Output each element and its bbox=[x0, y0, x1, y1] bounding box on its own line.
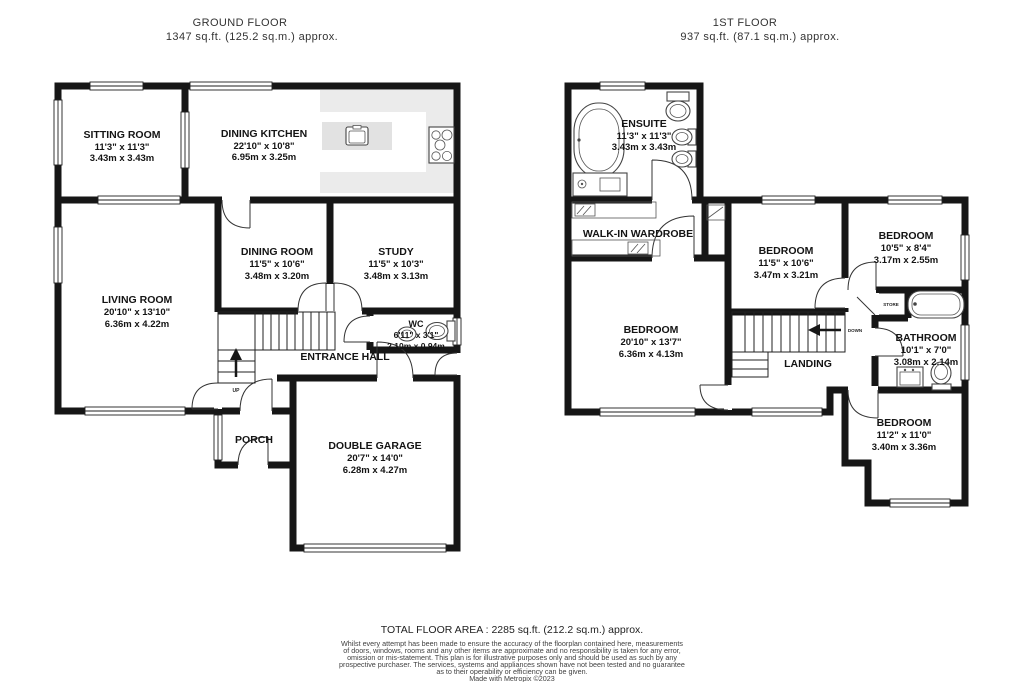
glazed-opening bbox=[98, 196, 180, 204]
window bbox=[190, 82, 272, 90]
room-name: BATHROOM bbox=[895, 332, 956, 344]
door-arc bbox=[240, 379, 272, 411]
window bbox=[85, 407, 185, 415]
room-name: BEDROOM bbox=[877, 417, 932, 429]
window bbox=[90, 82, 143, 90]
room-imperial: 11'2" x 11'0" bbox=[877, 430, 932, 441]
first-room-labels: ENSUITE 11'3" x 11'3" 3.43m x 3.43m WALK… bbox=[583, 118, 958, 453]
room-metric: 3.43m x 3.43m bbox=[90, 153, 154, 164]
door-arc bbox=[848, 390, 878, 418]
room-name: DOUBLE GARAGE bbox=[328, 440, 421, 452]
room-label-study: STUDY 11'5" x 10'3" 3.48m x 3.13m bbox=[364, 246, 428, 282]
room-metric: 2.10m x 0.94m bbox=[387, 341, 445, 351]
room-label-ensuite: ENSUITE 11'3" x 11'3" 3.43m x 3.43m bbox=[612, 118, 676, 153]
room-metric: 3.48m x 3.20m bbox=[245, 271, 309, 282]
floorplan-page: UP bbox=[0, 0, 1024, 682]
window bbox=[600, 408, 695, 416]
room-imperial: 10'1" x 7'0" bbox=[901, 345, 952, 356]
room-metric: 3.08m x 2.14m bbox=[894, 357, 958, 368]
room-label-double-garage: DOUBLE GARAGE 20'7" x 14'0" 6.28m x 4.27… bbox=[328, 440, 421, 476]
ground-floor-plan: UP bbox=[54, 82, 461, 552]
wardrobe-rail bbox=[572, 240, 660, 256]
ground-floor-area: 1347 sq.ft. (125.2 sq.m.) approx. bbox=[166, 31, 338, 43]
bathtub-icon bbox=[908, 291, 964, 318]
down-arrow-head bbox=[808, 324, 820, 336]
room-label-bedroom-topright: BEDROOM 10'5" x 8'4" 3.17m x 2.55m bbox=[874, 230, 938, 266]
room-label-walk-in-wardrobe: WALK-IN WARDROBE bbox=[583, 228, 693, 240]
floor-titles: GROUND FLOOR 1347 sq.ft. (125.2 sq.m.) a… bbox=[166, 17, 840, 43]
room-imperial: 11'5" x 10'3" bbox=[368, 259, 423, 270]
door-arc bbox=[222, 200, 250, 228]
room-name: STUDY bbox=[378, 246, 414, 258]
room-label-sitting-room: SITTING ROOM 11'3" x 11'3" 3.43m x 3.43m bbox=[84, 129, 161, 164]
down-label: DOWN bbox=[848, 328, 862, 333]
room-metric: 3.47m x 3.21m bbox=[754, 270, 818, 281]
sink-icon bbox=[346, 126, 368, 146]
room-label-bedroom-mid: BEDROOM 11'5" x 10'6" 3.47m x 3.21m bbox=[754, 245, 818, 281]
room-label-dining-room: DINING ROOM 11'5" x 10'6" 3.48m x 3.20m bbox=[241, 246, 314, 282]
window bbox=[752, 408, 822, 416]
room-name: LIVING ROOM bbox=[102, 294, 173, 306]
window bbox=[54, 227, 62, 283]
room-label-dining-kitchen: DINING KITCHEN 22'10" x 10'8" 6.95m x 3.… bbox=[221, 128, 307, 163]
room-metric: 3.40m x 3.36m bbox=[872, 442, 936, 453]
room-metric: 6.95m x 3.25m bbox=[232, 152, 296, 163]
room-label-landing: LANDING bbox=[784, 358, 832, 370]
wardrobe-rail bbox=[572, 202, 656, 218]
room-metric: 3.48m x 3.13m bbox=[364, 271, 428, 282]
window bbox=[54, 100, 62, 165]
room-name: ENSUITE bbox=[621, 118, 667, 130]
room-imperial: 20'10" x 13'10" bbox=[104, 307, 170, 318]
hob-icon bbox=[429, 127, 454, 163]
ground-floor-title: GROUND FLOOR bbox=[193, 17, 288, 29]
window bbox=[888, 196, 942, 204]
room-imperial: 20'10" x 13'7" bbox=[620, 337, 681, 348]
total-floor-area: TOTAL FLOOR AREA : 2285 sq.ft. (212.2 sq… bbox=[381, 624, 643, 636]
room-label-bedroom-master: BEDROOM 20'10" x 13'7" 6.36m x 4.13m bbox=[619, 324, 683, 360]
room-label-bathroom: BATHROOM 10'1" x 7'0" 3.08m x 2.14m bbox=[894, 332, 958, 368]
window bbox=[961, 235, 969, 280]
window bbox=[961, 325, 969, 380]
toilet-icon bbox=[666, 92, 690, 121]
floorplan-drawing: UP bbox=[0, 0, 1024, 682]
up-label: UP bbox=[233, 388, 241, 394]
door-arc bbox=[848, 262, 876, 290]
door-arc bbox=[298, 283, 326, 311]
room-imperial: 11'3" x 11'3" bbox=[95, 142, 150, 153]
room-metric: 3.17m x 2.55m bbox=[874, 255, 938, 266]
cupboard-icon bbox=[707, 205, 725, 220]
credit-line: Made with Metropix ©2023 bbox=[469, 674, 555, 682]
door-arc bbox=[700, 385, 728, 410]
room-imperial: 20'7" x 14'0" bbox=[347, 453, 403, 464]
kitchen-fixtures bbox=[346, 126, 454, 164]
room-name: WC bbox=[409, 319, 424, 329]
room-label-living-room: LIVING ROOM 20'10" x 13'10" 6.36m x 4.22… bbox=[102, 294, 173, 330]
window bbox=[600, 82, 645, 90]
first-floor-plan: DOWN bbox=[568, 82, 969, 507]
window bbox=[890, 499, 950, 507]
room-metric: 6.36m x 4.13m bbox=[619, 349, 683, 360]
room-metric: 3.43m x 3.43m bbox=[612, 142, 676, 153]
window bbox=[214, 415, 222, 460]
room-label-porch: PORCH bbox=[235, 434, 273, 446]
room-name: DINING ROOM bbox=[241, 246, 314, 258]
window bbox=[762, 196, 815, 204]
window bbox=[181, 112, 189, 168]
room-imperial: 11'5" x 10'6" bbox=[758, 258, 813, 269]
room-label-bedroom-bottomright: BEDROOM 11'2" x 11'0" 3.40m x 3.36m bbox=[872, 417, 936, 453]
room-name: BEDROOM bbox=[624, 324, 679, 336]
room-imperial: 11'3" x 11'3" bbox=[617, 131, 672, 142]
first-floor-area: 937 sq.ft. (87.1 sq.m.) approx. bbox=[680, 31, 839, 43]
room-metric: 6.36m x 4.22m bbox=[105, 319, 169, 330]
room-name: DINING KITCHEN bbox=[221, 128, 307, 140]
basin-icon bbox=[672, 151, 696, 167]
footer-text: TOTAL FLOOR AREA : 2285 sq.ft. (212.2 sq… bbox=[339, 624, 685, 682]
room-imperial: 22'10" x 10'8" bbox=[233, 141, 294, 152]
room-name: BEDROOM bbox=[759, 245, 814, 257]
kitchen-counter-bottom bbox=[320, 172, 454, 193]
sink-icon bbox=[897, 367, 923, 387]
room-name: BEDROOM bbox=[879, 230, 934, 242]
room-imperial: 11'5" x 10'6" bbox=[249, 259, 304, 270]
room-name: SITTING ROOM bbox=[84, 129, 161, 141]
room-imperial: 6'11" x 3'1" bbox=[394, 330, 439, 340]
store-label: STORE bbox=[883, 302, 898, 307]
room-imperial: 10'5" x 8'4" bbox=[881, 243, 932, 254]
first-floor-title: 1ST FLOOR bbox=[713, 17, 778, 29]
door-arc bbox=[334, 283, 362, 311]
garage-door bbox=[304, 544, 446, 552]
shower-icon bbox=[573, 173, 627, 196]
room-metric: 6.28m x 4.27m bbox=[343, 465, 407, 476]
door-arc bbox=[815, 278, 845, 308]
room-label-entrance-hall: ENTRANCE HALL bbox=[300, 351, 390, 363]
